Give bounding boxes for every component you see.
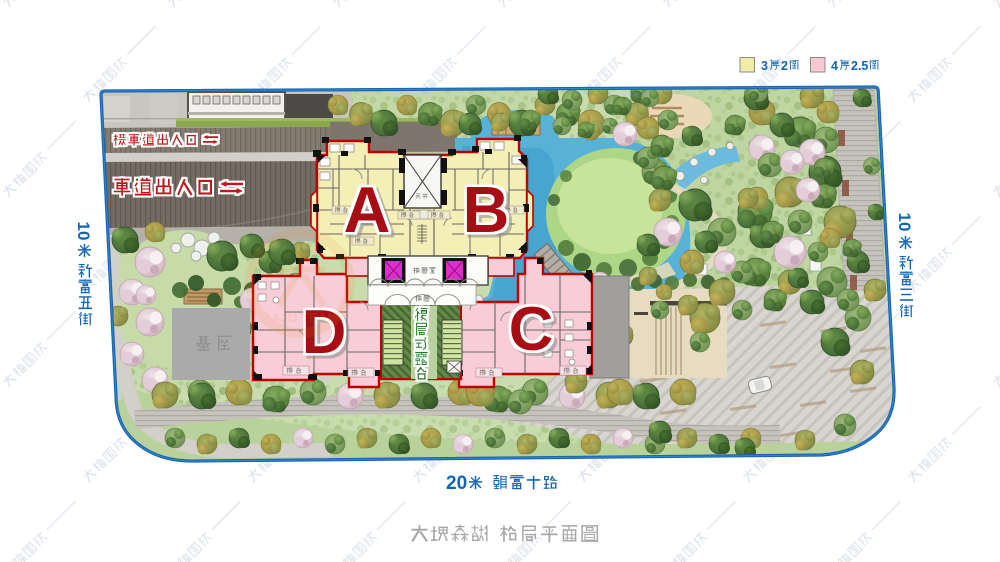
svg-text:20: 20 xyxy=(446,473,467,494)
svg-text:10: 10 xyxy=(74,222,93,241)
svg-text:2.5: 2.5 xyxy=(851,59,868,73)
svg-text:B: B xyxy=(463,173,510,246)
svg-text:4: 4 xyxy=(831,59,838,73)
svg-text:2: 2 xyxy=(781,59,788,73)
svg-text:A: A xyxy=(344,173,391,246)
svg-text:3: 3 xyxy=(761,59,768,73)
svg-text:C: C xyxy=(509,295,554,364)
svg-text:10: 10 xyxy=(895,213,914,232)
svg-text:DAJU TEAM: DAJU TEAM xyxy=(262,310,338,325)
